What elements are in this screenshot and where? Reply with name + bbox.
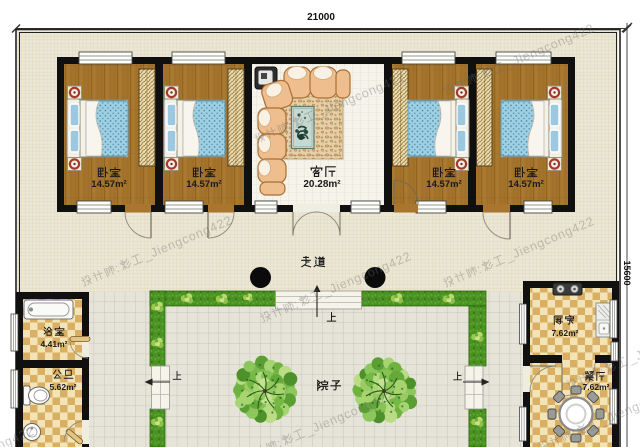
svg-text:14.57m²: 14.57m² bbox=[186, 179, 221, 190]
svg-text:14.57m²: 14.57m² bbox=[426, 179, 461, 190]
svg-text:7.62m²: 7.62m² bbox=[552, 328, 579, 338]
svg-text:20.28m²: 20.28m² bbox=[303, 179, 341, 190]
svg-text:15600: 15600 bbox=[622, 260, 632, 285]
svg-text:14.57m²: 14.57m² bbox=[508, 179, 543, 190]
svg-text:5.62m²: 5.62m² bbox=[50, 382, 77, 392]
svg-text:21000: 21000 bbox=[307, 12, 335, 23]
svg-text:4.41m²: 4.41m² bbox=[41, 339, 68, 349]
svg-text:14.57m²: 14.57m² bbox=[91, 179, 126, 190]
svg-text:7.62m²: 7.62m² bbox=[583, 382, 610, 392]
